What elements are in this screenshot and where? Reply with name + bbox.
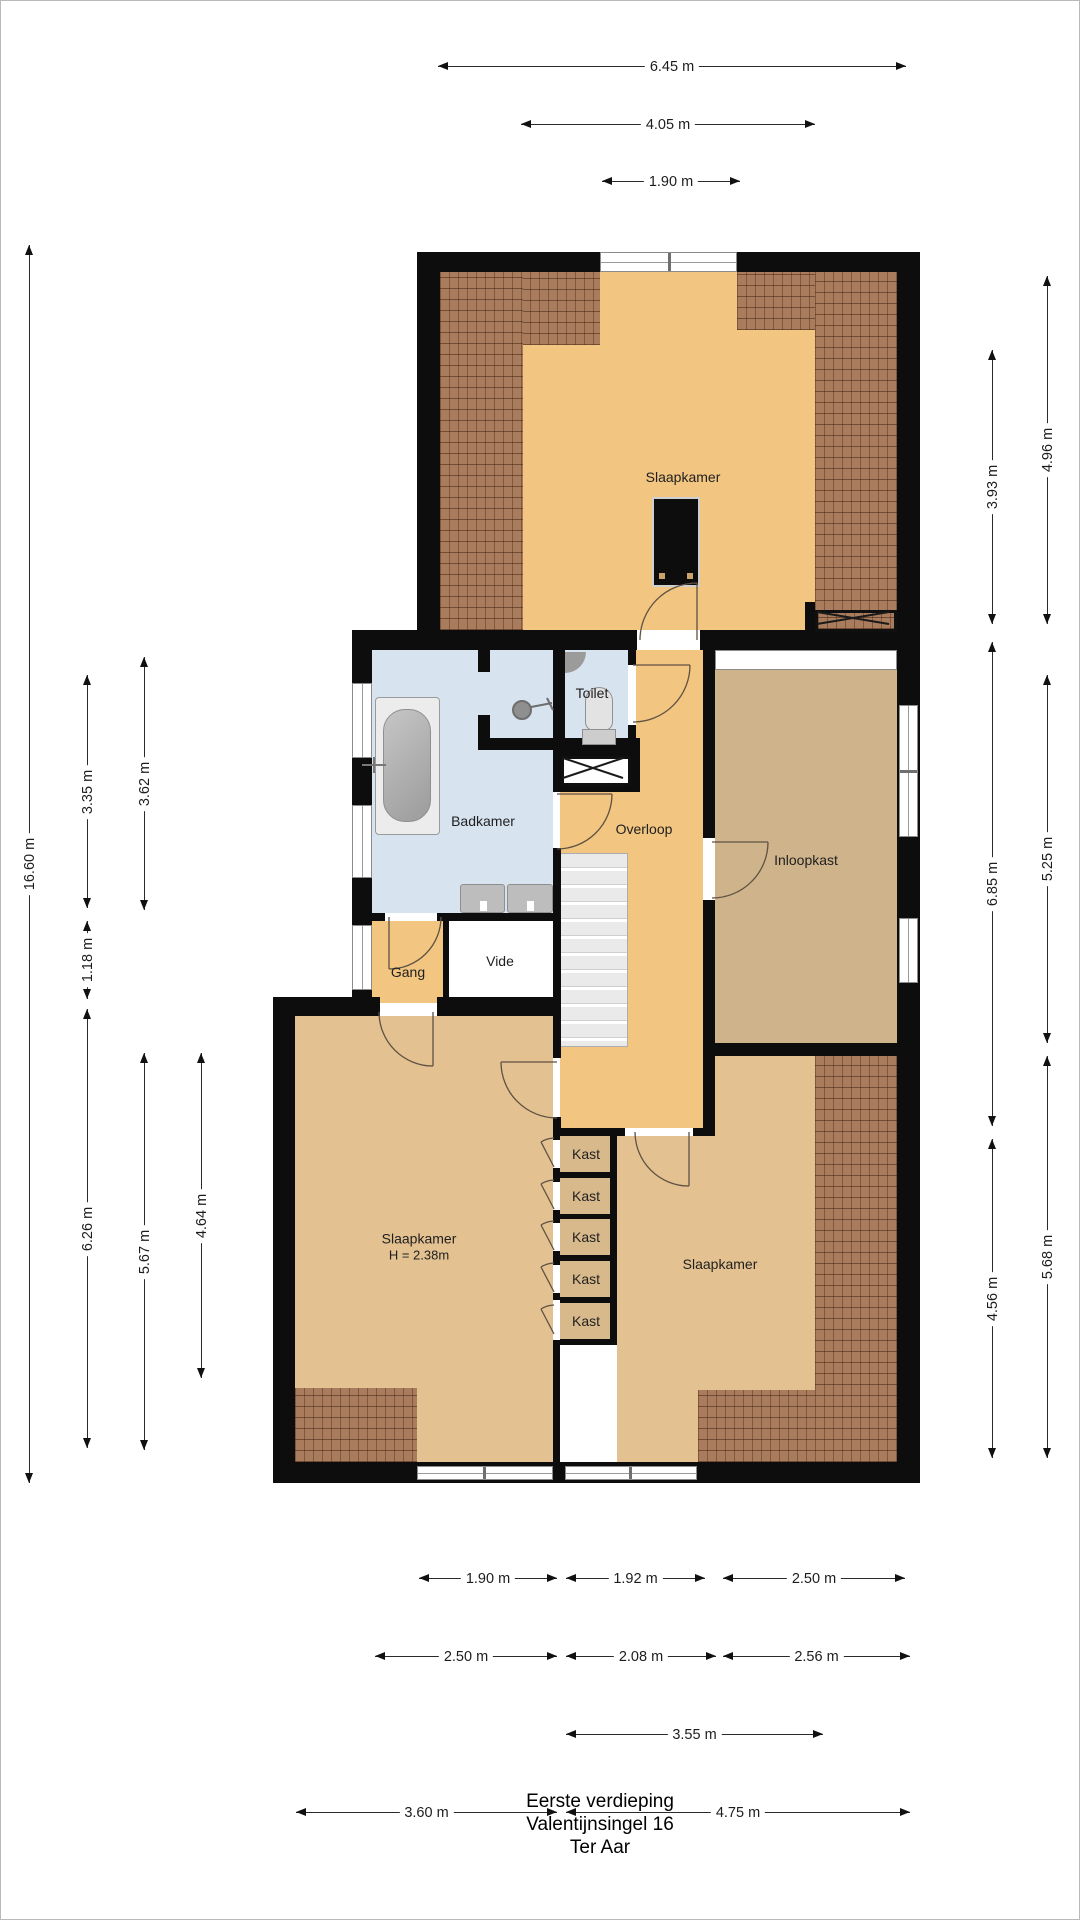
dimension-2.50m: 2.50 m (723, 1570, 905, 1588)
dimension-3.93m: 3.93 m (984, 350, 1002, 624)
roof-hatch (295, 1388, 417, 1462)
window (352, 683, 372, 758)
dimension-16.60m: 16.60 m (21, 245, 39, 1483)
dimension-4.96m: 4.96 m (1039, 276, 1057, 624)
dimension-5.67m: 5.67 m (136, 1053, 154, 1450)
interior-window-band (715, 650, 897, 670)
room-label-slaapkamer-rechts: Slaapkamer (683, 1255, 758, 1273)
room-label-kast-5: Kast (572, 1312, 600, 1330)
dimension-2.50m: 2.50 m (375, 1648, 557, 1666)
dark-furniture (652, 497, 700, 587)
wall (703, 650, 715, 838)
dimension-4.56m: 4.56 m (984, 1139, 1002, 1458)
title-address: Valentijnsingel 16 (380, 1813, 820, 1836)
wall (553, 1345, 560, 1462)
wall (897, 252, 920, 650)
wall (553, 1117, 561, 1128)
window (899, 918, 918, 983)
dimension-6.85m: 6.85 m (984, 642, 1002, 1126)
dimension-4.64m: 4.64 m (193, 1053, 211, 1378)
room-label-inloopkast: Inloopkast (774, 851, 838, 869)
room-label-toilet: Toilet (576, 684, 609, 702)
wall (703, 1043, 920, 1056)
floor-overloop (636, 650, 703, 1128)
double-washbasin (460, 884, 553, 913)
wall (478, 650, 490, 672)
dimension-6.45m: 6.45 m (438, 58, 906, 76)
window (417, 1466, 553, 1480)
roof-hatch (815, 272, 897, 612)
dimension-1.90m: 1.90 m (419, 1570, 557, 1588)
dormer-box (815, 610, 897, 632)
wall (805, 602, 815, 632)
title-city: Ter Aar (380, 1836, 820, 1859)
dimension-2.08m: 2.08 m (566, 1648, 716, 1666)
room-label-slaapkamer-boven: Slaapkamer (646, 468, 721, 486)
window (565, 1466, 697, 1480)
room-label-badkamer: Badkamer (451, 812, 515, 830)
shaft-box (561, 756, 631, 786)
room-label-kast-1: Kast (572, 1145, 600, 1163)
floorplan-page: { "plan": { "title": ["Eerste verdieping… (0, 0, 1080, 1920)
title-floor: Eerste verdieping (380, 1790, 820, 1813)
floorplan: SlaapkamerBadkamerToiletOverloopInloopka… (0, 0, 1080, 1920)
wall (417, 252, 600, 272)
dimension-6.26m: 6.26 m (79, 1009, 97, 1448)
wall (553, 913, 561, 1058)
dimension-2.56m: 2.56 m (723, 1648, 910, 1666)
room-label-kast-2: Kast (572, 1187, 600, 1205)
room-label-vide: Vide (486, 952, 514, 970)
title-block: Eerste verdieping Valentijnsingel 16 Ter… (380, 1790, 820, 1859)
dimension-1.92m: 1.92 m (566, 1570, 705, 1588)
dimension-4.05m: 4.05 m (521, 116, 815, 134)
room-label-kast-4: Kast (572, 1270, 600, 1288)
wall (352, 630, 637, 650)
bathtub (375, 697, 440, 835)
room-label-slaapkamer-links: SlaapkamerH = 2.38m (382, 1229, 457, 1264)
window (899, 705, 918, 837)
window (352, 805, 372, 878)
wall (737, 252, 920, 272)
wall (273, 997, 295, 1483)
wall (553, 650, 565, 750)
room-label-kast-3: Kast (572, 1228, 600, 1246)
wall (437, 997, 560, 1016)
wall (417, 252, 440, 650)
dimension-3.62m: 3.62 m (136, 657, 154, 910)
wall (897, 1054, 920, 1483)
room-label-overloop: Overloop (616, 820, 673, 838)
dimension-1.90m: 1.90 m (602, 173, 740, 191)
roof-hatch (440, 272, 523, 630)
wall (703, 900, 715, 1136)
wall (437, 913, 560, 921)
room-label-gang: Gang (391, 963, 425, 981)
wall (352, 913, 385, 921)
dimension-5.25m: 5.25 m (1039, 675, 1057, 1043)
window (600, 252, 737, 272)
dimension-1.18m: 1.18 m (79, 921, 97, 999)
dimension-5.68m: 5.68 m (1039, 1056, 1057, 1458)
wall (693, 1128, 715, 1136)
wall (700, 630, 920, 650)
dimension-3.55m: 3.55 m (566, 1726, 823, 1744)
dimension-3.35m: 3.35 m (79, 675, 97, 908)
window (352, 925, 372, 990)
wall (443, 913, 449, 1005)
roof-hatch (698, 1390, 897, 1462)
wall (628, 650, 636, 665)
staircase (560, 853, 628, 1047)
wall (553, 848, 561, 913)
